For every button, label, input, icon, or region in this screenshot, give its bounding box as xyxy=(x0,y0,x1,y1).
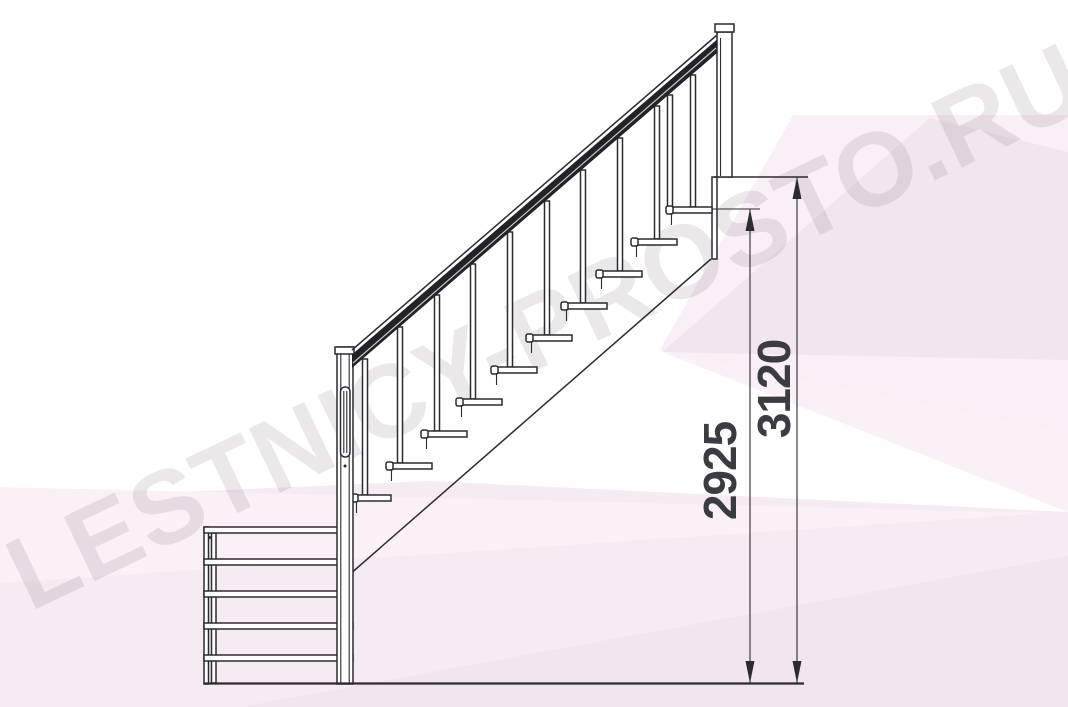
baluster xyxy=(691,75,696,207)
baluster xyxy=(668,95,673,207)
fastener-dot xyxy=(208,536,211,539)
fastener-dot xyxy=(344,465,347,468)
baluster xyxy=(398,327,403,463)
newel-turned-detail xyxy=(341,387,351,457)
lower-step-1 xyxy=(204,527,338,533)
lower-step-2 xyxy=(204,559,338,565)
lower-step-3 xyxy=(204,591,338,597)
dimension-label-2925: 2925 xyxy=(694,421,746,520)
baluster xyxy=(508,232,513,367)
tread-2 xyxy=(386,462,432,481)
baluster xyxy=(435,295,440,431)
newel-post-top xyxy=(715,24,734,177)
lower-step-5 xyxy=(204,655,353,661)
lower-step-4 xyxy=(204,623,353,629)
newel-post-cap xyxy=(335,347,354,354)
dimension-label-3120: 3120 xyxy=(748,340,800,438)
baluster xyxy=(471,264,476,399)
staircase-elevation-drawing: LESTNICY-PROSTO.RU xyxy=(0,0,1068,707)
drawing-svg: LESTNICY-PROSTO.RU xyxy=(0,0,1068,707)
top-post-cap xyxy=(715,24,734,32)
top-post-body xyxy=(717,32,732,177)
baluster xyxy=(618,138,623,271)
baluster xyxy=(655,106,660,239)
newel-post-bottom xyxy=(335,347,354,684)
baluster xyxy=(545,201,550,335)
baluster xyxy=(581,170,586,303)
landing-fascia xyxy=(712,177,717,259)
baluster xyxy=(363,359,368,495)
